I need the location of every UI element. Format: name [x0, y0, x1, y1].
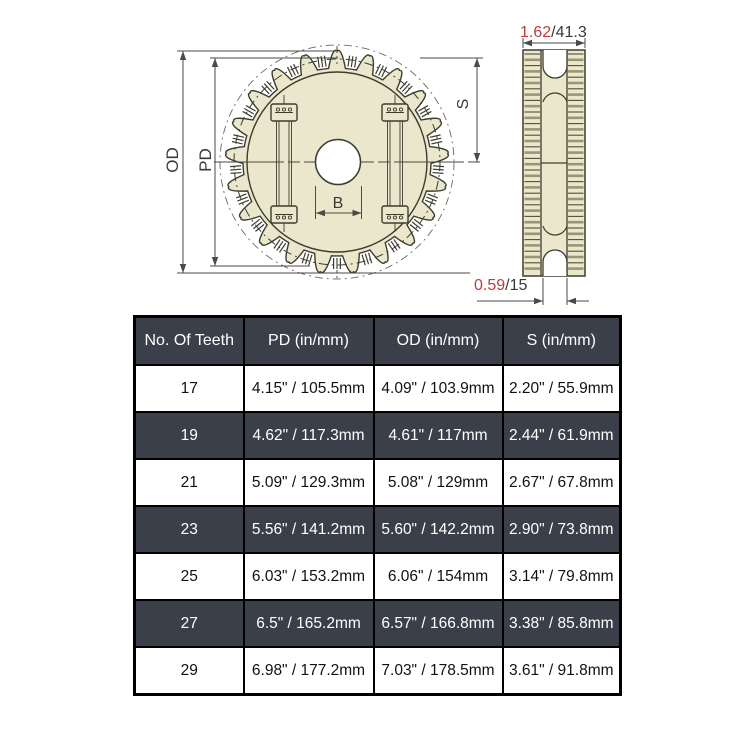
cell-od: 5.08" / 129mm — [374, 459, 503, 506]
cell-s: 2.20" / 55.9mm — [503, 365, 621, 412]
table-row: 23 5.56" / 141.2mm 5.60" / 142.2mm 2.90"… — [135, 506, 621, 553]
cell-pd: 4.62" / 117.3mm — [244, 412, 374, 459]
cell-pd: 6.03" / 153.2mm — [244, 553, 374, 600]
cell-s: 3.61" / 91.8mm — [503, 647, 621, 695]
cell-s: 2.44" / 61.9mm — [503, 412, 621, 459]
groove-width-dimension-text: 0.59/15 — [474, 277, 527, 294]
sprocket-technical-drawing: OD PD B S 1.62/41.3 0.59/15 — [0, 0, 750, 315]
cell-teeth: 25 — [135, 553, 244, 600]
sprocket-spec-table: No. Of Teeth PD (in/mm) OD (in/mm) S (in… — [133, 315, 622, 696]
groove-width-mm-value: /15 — [505, 277, 527, 294]
cell-teeth: 21 — [135, 459, 244, 506]
col-header-od: OD (in/mm) — [374, 317, 503, 366]
groove-width-inch-value: 0.59 — [474, 277, 505, 294]
pd-dimension-label: PD — [196, 148, 215, 172]
cell-od: 4.61" / 117mm — [374, 412, 503, 459]
cell-s: 3.38" / 85.8mm — [503, 600, 621, 647]
sprocket-front-view — [214, 45, 481, 279]
cell-teeth: 23 — [135, 506, 244, 553]
cell-od: 4.09" / 103.9mm — [374, 365, 503, 412]
sprocket-side-view — [523, 50, 585, 276]
cell-pd: 4.15" / 105.5mm — [244, 365, 374, 412]
cell-od: 6.57" / 166.8mm — [374, 600, 503, 647]
table-row: 29 6.98" / 177.2mm 7.03" / 178.5mm 3.61"… — [135, 647, 621, 695]
table-row: 17 4.15" / 105.5mm 4.09" / 103.9mm 2.20"… — [135, 365, 621, 412]
table-row: 19 4.62" / 117.3mm 4.61" / 117mm 2.44" /… — [135, 412, 621, 459]
side-width-inch-value: 1.62 — [520, 24, 551, 41]
cell-s: 2.90" / 73.8mm — [503, 506, 621, 553]
side-width-mm-value: /41.3 — [551, 24, 587, 41]
cell-od: 5.60" / 142.2mm — [374, 506, 503, 553]
table-row: 25 6.03" / 153.2mm 6.06" / 154mm 3.14" /… — [135, 553, 621, 600]
cell-pd: 5.09" / 129.3mm — [244, 459, 374, 506]
cell-pd: 5.56" / 141.2mm — [244, 506, 374, 553]
col-header-teeth: No. Of Teeth — [135, 317, 244, 366]
cell-s: 3.14" / 79.8mm — [503, 553, 621, 600]
header-row: No. Of Teeth PD (in/mm) OD (in/mm) S (in… — [135, 317, 621, 366]
table-row: 21 5.09" / 129.3mm 5.08" / 129mm 2.67" /… — [135, 459, 621, 506]
cell-teeth: 27 — [135, 600, 244, 647]
cell-od: 6.06" / 154mm — [374, 553, 503, 600]
col-header-pd: PD (in/mm) — [244, 317, 374, 366]
cell-od: 7.03" / 178.5mm — [374, 647, 503, 695]
bore-dimension-label: B — [333, 195, 344, 212]
cell-teeth: 19 — [135, 412, 244, 459]
page: OD PD B S 1.62/41.3 0.59/15 No. Of Teeth… — [0, 0, 750, 750]
cell-pd: 6.5" / 165.2mm — [244, 600, 374, 647]
od-dimension-label: OD — [163, 147, 182, 173]
cell-s: 2.67" / 67.8mm — [503, 459, 621, 506]
cell-teeth: 17 — [135, 365, 244, 412]
cell-teeth: 29 — [135, 647, 244, 695]
s-dimension-label: S — [455, 99, 472, 110]
cell-pd: 6.98" / 177.2mm — [244, 647, 374, 695]
side-width-dimension-text: 1.62/41.3 — [520, 24, 587, 41]
col-header-s: S (in/mm) — [503, 317, 621, 366]
table-row: 27 6.5" / 165.2mm 6.57" / 166.8mm 3.38" … — [135, 600, 621, 647]
bore-hole — [316, 140, 361, 185]
